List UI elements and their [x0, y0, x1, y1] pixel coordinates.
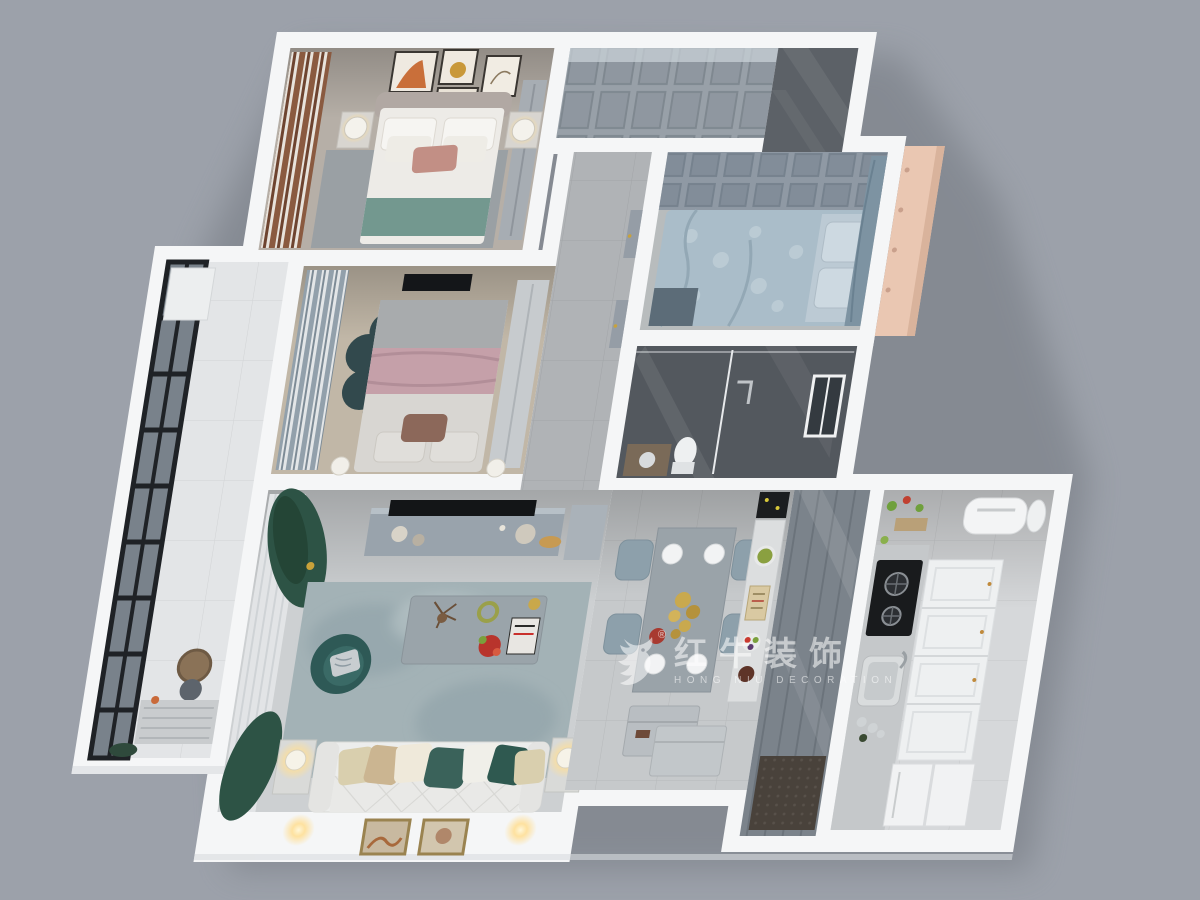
chair — [614, 540, 654, 580]
room-second-bedroom — [270, 266, 555, 477]
fridge — [883, 764, 975, 826]
chair — [602, 614, 642, 654]
wall-tv — [402, 274, 473, 291]
sofa-pillows — [333, 742, 550, 789]
green-plate — [755, 547, 776, 565]
brown-pillow — [400, 414, 448, 442]
room-hallway-wardrobe — [556, 48, 778, 138]
floorplan-svg — [0, 0, 1200, 900]
balcony-cabinet — [163, 268, 215, 320]
framed-picture — [361, 820, 410, 854]
teal-throw — [361, 198, 491, 236]
books — [506, 618, 540, 654]
built-in-oven — [756, 492, 790, 518]
tv-console — [364, 500, 568, 556]
floorplan-render — [0, 0, 1200, 900]
door-mat — [749, 756, 827, 830]
dark-blanket — [648, 288, 698, 326]
pink-pillow — [411, 144, 458, 173]
room-bathroom — [616, 346, 857, 478]
tv — [388, 500, 537, 516]
air-conditioner — [961, 498, 1048, 534]
paneled-wardrobe — [659, 152, 888, 210]
room-master-bedroom — [258, 48, 554, 250]
white-sofa — [307, 742, 550, 812]
blue-bed — [648, 210, 874, 326]
room-tatami-bedroom — [640, 152, 888, 330]
second-bed — [353, 300, 508, 472]
coffee-table — [401, 596, 548, 664]
